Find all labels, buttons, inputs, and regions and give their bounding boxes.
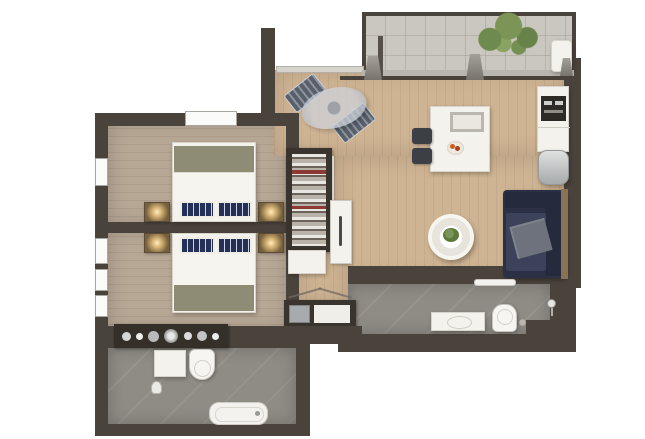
bedroom-1-nightstand-right <box>258 202 284 222</box>
toilet-seat-line <box>194 360 211 377</box>
fruit-orange-2 <box>455 146 460 151</box>
wardrobe-open <box>286 148 332 252</box>
door-panel <box>330 200 352 264</box>
dining-chair-2 <box>412 148 432 164</box>
counter-item <box>164 329 178 343</box>
counter-item <box>197 331 207 341</box>
left-wall-seg-2 <box>95 186 108 238</box>
appliance-display-1 <box>544 101 552 105</box>
coffee-table-plant <box>443 228 459 242</box>
wardrobe-hanging-clothes <box>292 154 326 246</box>
bedroom-1-pillow-left <box>180 201 215 218</box>
bedroom-2-bed-runner <box>174 285 254 311</box>
appliance-buttons <box>544 110 563 113</box>
bathroom-2-glass-shelf <box>474 279 516 286</box>
oven-microwave <box>541 96 566 121</box>
bathroom-1-hand-shower <box>151 381 162 394</box>
bathtub-faucet <box>255 411 260 416</box>
bathroom-2-shower-wall <box>526 320 552 334</box>
bedroom-2-pillow-left <box>180 237 215 254</box>
bedroom-1-top-wall-left <box>95 113 185 126</box>
bedroom-2-left-window-2 <box>95 269 108 291</box>
left-wall-seg-5 <box>95 317 108 436</box>
balcony-railing-top <box>362 12 576 16</box>
kitchen-counter-line <box>538 127 570 128</box>
bathroom-1-bathtub <box>209 402 268 425</box>
shower-head <box>547 299 556 308</box>
counter-item <box>122 332 131 341</box>
fridge <box>538 150 569 185</box>
storage-bench-unit <box>284 300 356 328</box>
bathroom-1-south-wall <box>95 424 310 436</box>
wardrobe-red-garment-1 <box>292 170 326 174</box>
counter-item <box>136 333 143 340</box>
balcony-plant <box>468 12 546 56</box>
bedroom-1-pillow-right <box>217 201 252 218</box>
wardrobe-red-garment-2 <box>292 206 326 209</box>
bedroom-2-nightstand-left <box>144 233 170 253</box>
bedroom-2-pillow-right <box>217 237 252 254</box>
bathroom-1-toilet <box>189 349 215 380</box>
appliance-display-2 <box>555 101 563 105</box>
bench-white-insert <box>314 305 350 323</box>
wall-below-bench <box>284 326 362 344</box>
sofa-wood-frame <box>561 189 568 279</box>
floor-plan <box>0 0 645 439</box>
fruit-bowl <box>447 141 464 155</box>
bedroom-1-top-window <box>185 111 237 126</box>
toilet-seat-line-2 <box>497 309 513 325</box>
door-handle <box>339 216 342 246</box>
bedroom-2-bed-duvet <box>174 255 254 286</box>
floor-drain <box>519 319 526 326</box>
entry-wall-stub <box>261 28 275 116</box>
counter-item <box>148 331 159 342</box>
bedroom-1-bed-runner <box>174 146 254 172</box>
entry-glazing <box>276 66 364 73</box>
kitchenette-unit <box>537 86 569 152</box>
balcony-railing-right <box>572 12 576 72</box>
bathroom-2-vanity <box>431 312 485 331</box>
left-wall-seg-1 <box>95 113 108 158</box>
coffee-table <box>428 214 474 260</box>
bench-gray-insert <box>289 305 310 323</box>
bathroom-1-cabinet <box>154 350 186 377</box>
shower-head-stem <box>551 308 553 316</box>
dining-tray <box>450 112 484 132</box>
counter-item <box>184 332 192 340</box>
bathroom-2-toilet <box>492 304 517 332</box>
balcony-railing-left <box>362 12 366 72</box>
vanity-basin <box>447 316 472 329</box>
dining-chair-1 <box>412 128 432 144</box>
wardrobe-base-cabinet <box>288 250 326 274</box>
counter-item <box>212 333 219 340</box>
bedroom-1-nightstand-left <box>144 202 170 222</box>
bedroom-2-nightstand-right <box>258 233 284 253</box>
bedroom-2-left-window-1 <box>95 238 108 264</box>
bedroom-2-vanity-counter <box>114 324 228 348</box>
bedroom-1-left-window <box>95 158 108 186</box>
bedroom-1-bed-duvet <box>174 172 254 201</box>
bedroom-divider-wall <box>108 222 298 233</box>
sofa <box>503 190 565 278</box>
bedroom-2-left-window-3 <box>95 295 108 317</box>
